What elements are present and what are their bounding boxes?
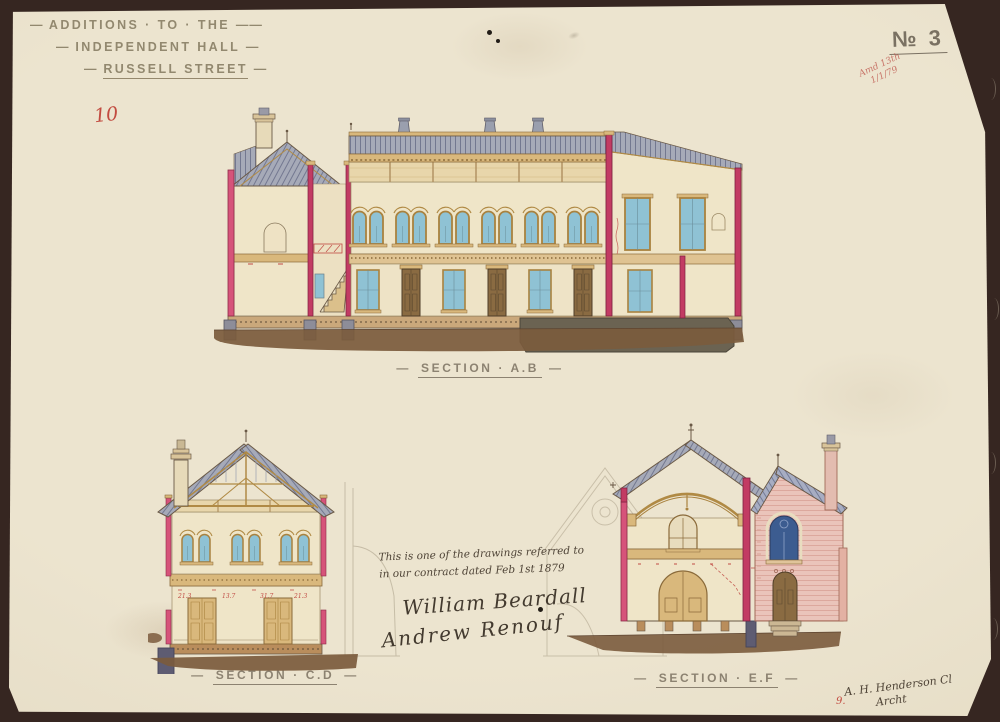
ink-dot bbox=[487, 30, 492, 35]
red-dimension: 13.7 bbox=[222, 593, 236, 600]
niche bbox=[264, 223, 286, 252]
title-line-3: — RUSSELL STREET — bbox=[84, 62, 267, 76]
figure-section-ef bbox=[543, 418, 849, 670]
cut-wall-pink bbox=[228, 170, 234, 316]
figure-section-cd: 21.3 13.7 31.7 21.3 bbox=[148, 422, 400, 674]
mount-scratch bbox=[986, 452, 996, 474]
upper-room bbox=[172, 500, 320, 574]
section-ef-drawing bbox=[543, 418, 849, 670]
mount-scratch bbox=[989, 298, 999, 320]
mount-scratch bbox=[988, 618, 998, 640]
section-ab-drawing bbox=[208, 106, 748, 358]
pink-wing-elevation bbox=[751, 435, 847, 636]
red-dimension: 21.3 bbox=[177, 593, 192, 600]
caption-section-cd: —SECTION · C.D— bbox=[155, 668, 395, 682]
figure-section-ab bbox=[208, 106, 748, 358]
red-dimension: 31.7 bbox=[260, 593, 274, 600]
section-cd-drawing: 21.3 13.7 31.7 21.3 bbox=[148, 422, 400, 674]
main-hall bbox=[349, 118, 608, 316]
title-line-1: — ADDITIONS · TO · THE —— bbox=[30, 18, 267, 32]
title-line-2: — INDEPENDENT HALL — bbox=[56, 40, 267, 54]
gable-roof-and-truss bbox=[158, 430, 334, 517]
red-corner-number: 9. bbox=[836, 696, 846, 707]
caption-section-ab: —SECTION · A.B— bbox=[330, 361, 630, 375]
frieze bbox=[349, 162, 608, 182]
ground bbox=[567, 632, 841, 653]
string-course bbox=[349, 254, 608, 264]
chimney bbox=[174, 460, 188, 506]
foundation-and-ground bbox=[214, 316, 744, 352]
ink-dot bbox=[496, 39, 500, 43]
wing-chimney bbox=[825, 448, 837, 510]
right-end bbox=[604, 131, 742, 318]
title-block: — ADDITIONS · TO · THE —— — INDEPENDENT … bbox=[30, 18, 267, 84]
stair-bay bbox=[306, 161, 353, 316]
caption-section-ef: —SECTION · E.F— bbox=[597, 671, 837, 685]
scanned-architectural-drawing: — ADDITIONS · TO · THE —— — INDEPENDENT … bbox=[0, 0, 1000, 722]
roof-right-slope bbox=[685, 440, 769, 499]
red-dimension: 21.3 bbox=[293, 593, 308, 600]
chimney bbox=[256, 118, 272, 148]
main-hall-section bbox=[610, 424, 769, 648]
roof-slate-band bbox=[349, 136, 608, 154]
contract-note: This is one of the drawings referred to … bbox=[378, 543, 581, 646]
mount-scratch bbox=[986, 78, 996, 100]
folio-number: 10 bbox=[93, 103, 119, 127]
